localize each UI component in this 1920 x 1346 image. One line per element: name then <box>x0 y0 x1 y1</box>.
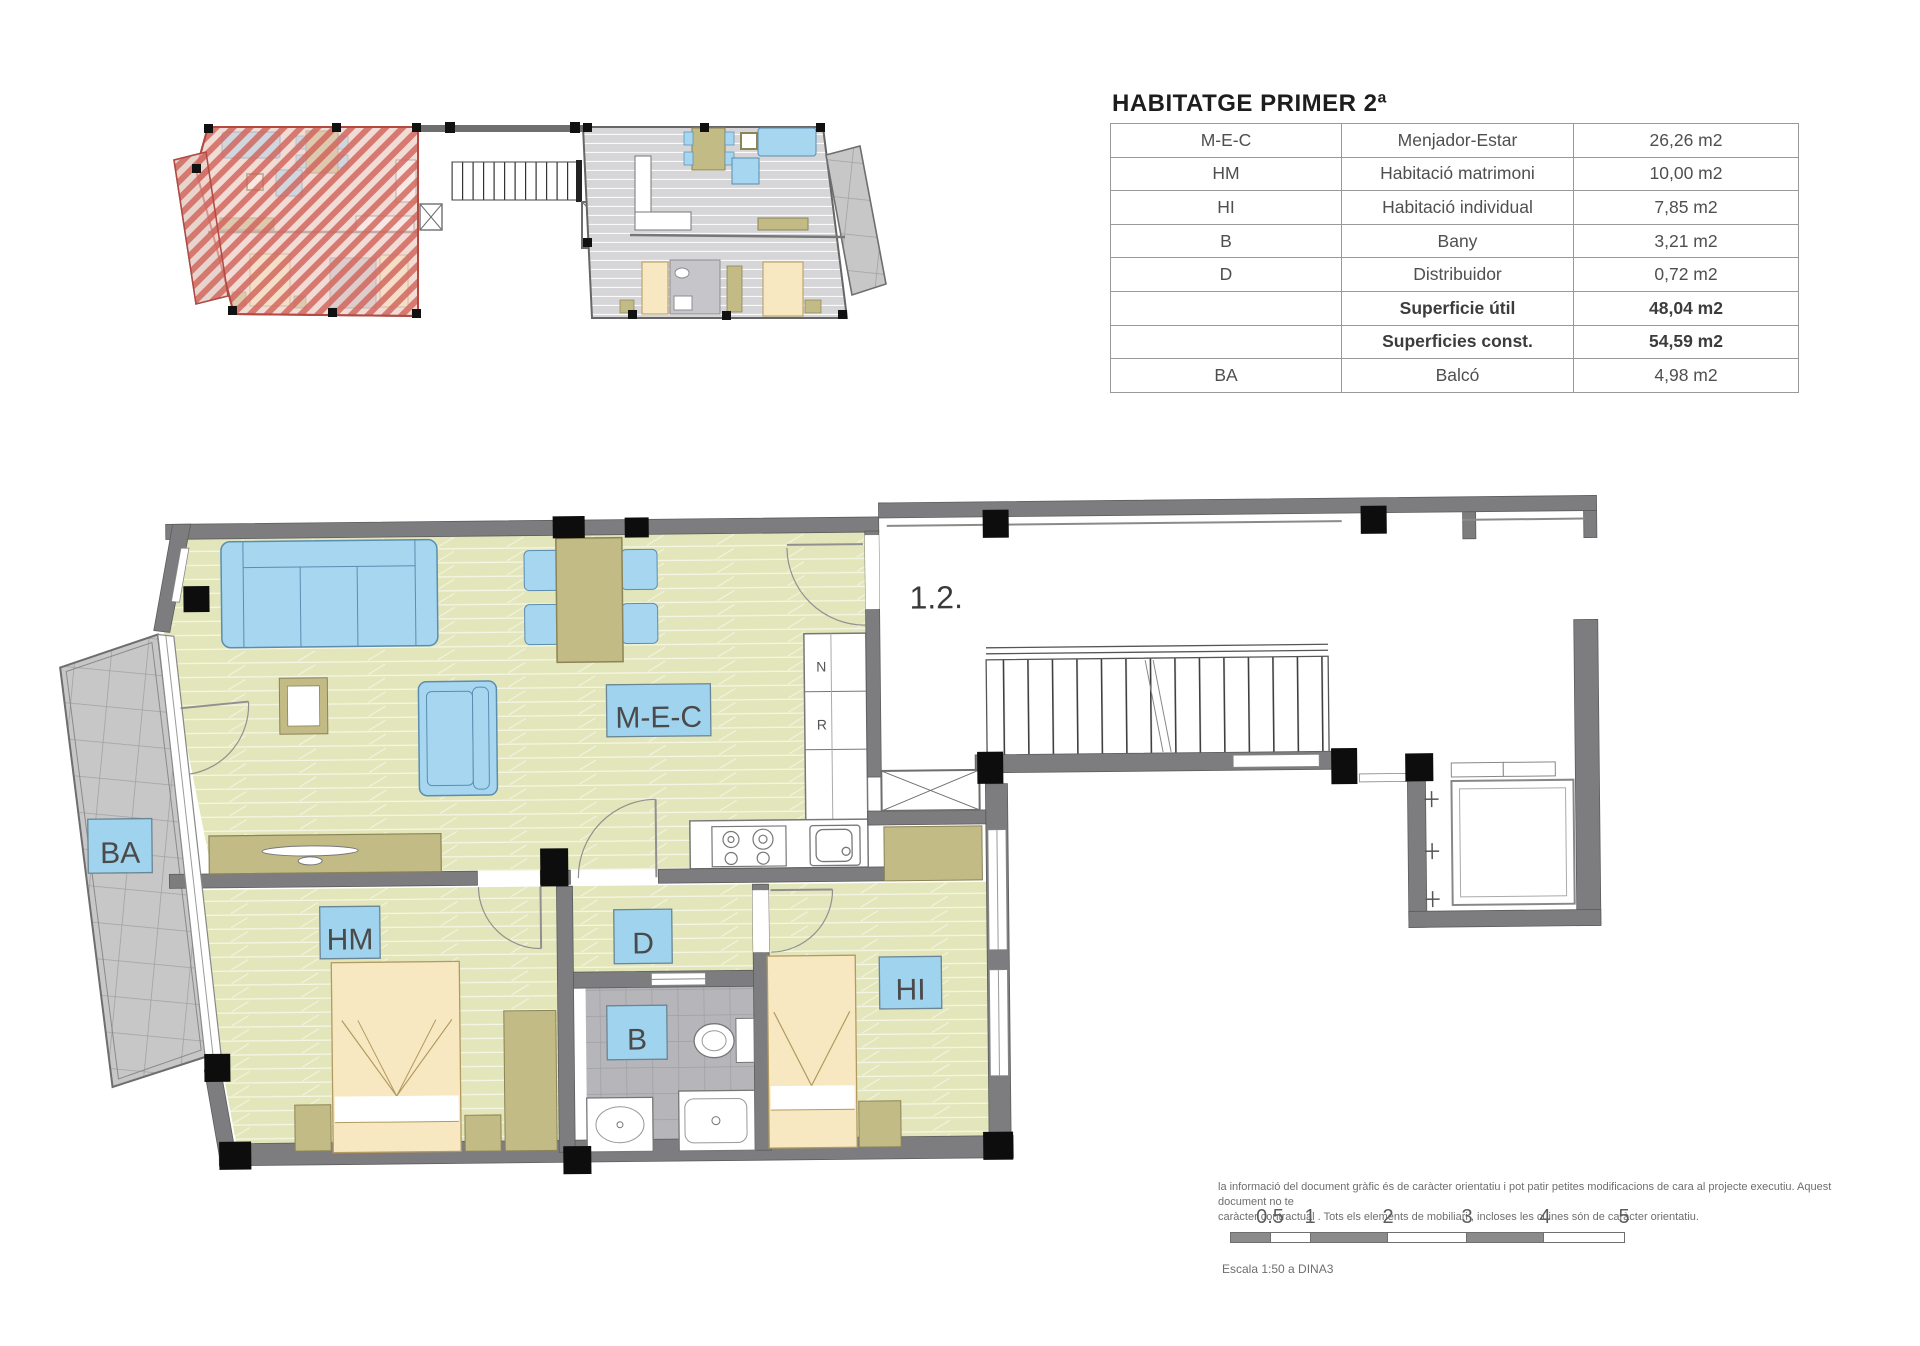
svg-text:BA: BA <box>100 837 140 870</box>
table-row: M-E-C Menjador-Estar 26,26 m2 <box>1111 124 1799 158</box>
stairwell: 1.2. <box>909 575 1329 756</box>
svg-text:M-E-C: M-E-C <box>615 701 702 735</box>
table-row: HI Habitació individual 7,85 m2 <box>1111 191 1799 225</box>
dining-table <box>556 538 623 663</box>
door-gap-hi <box>753 890 770 952</box>
room-code: HM <box>1111 157 1342 191</box>
room-concept: Superficies const. <box>1342 325 1574 359</box>
room-code: HI <box>1111 191 1342 225</box>
room-area: 7,85 m2 <box>1574 191 1799 225</box>
label-d: D <box>614 909 673 964</box>
wardrobe <box>504 1010 557 1151</box>
room-concept: Menjador-Estar <box>1342 124 1574 158</box>
svg-text:D: D <box>632 927 654 960</box>
vent-shaft <box>881 770 979 811</box>
table-row: HM Habitació matrimoni 10,00 m2 <box>1111 157 1799 191</box>
page-title: HABITATGE PRIMER 2ª <box>1112 90 1387 118</box>
room-area: 48,04 m2 <box>1574 291 1799 325</box>
table-row: D Distribuidor 0,72 m2 <box>1111 258 1799 292</box>
floor-plan-sheet: { "header": { "title": "HABITATGE PRIMER… <box>0 0 1920 1346</box>
vanity-sink-icon <box>679 1090 756 1151</box>
room-concept: Distribuidor <box>1342 258 1574 292</box>
room-area: 0,72 m2 <box>1574 258 1799 292</box>
label-b: B <box>607 1005 668 1060</box>
elevator-car <box>1451 780 1574 905</box>
scale-tick: 2 <box>1382 1206 1393 1229</box>
scale-tick: 4 <box>1539 1206 1550 1229</box>
table-row: Superficie útil 48,04 m2 <box>1111 291 1799 325</box>
scale-tick-labels: 0.5 1 2 3 4 5 <box>1230 1206 1630 1232</box>
room-concept: Superficie útil <box>1342 291 1574 325</box>
washbasin-icon <box>587 1097 654 1152</box>
key-plan <box>174 122 886 320</box>
table-row: BA Balcó 4,98 m2 <box>1111 359 1799 393</box>
label-mec: M-E-C <box>606 684 711 737</box>
room-concept: Balcó <box>1342 359 1574 393</box>
room-area: 54,59 m2 <box>1574 325 1799 359</box>
scale-tick: 3 <box>1461 1206 1472 1229</box>
nightstand <box>295 1105 331 1151</box>
armchair <box>418 681 497 796</box>
label-hm: HM <box>320 906 381 959</box>
landing-gap <box>1233 754 1319 767</box>
room-code: BA <box>1111 359 1342 393</box>
table-row: B Bany 3,21 m2 <box>1111 224 1799 258</box>
room-area: 26,26 m2 <box>1574 124 1799 158</box>
room-code: D <box>1111 258 1342 292</box>
room-code: M-E-C <box>1111 124 1342 158</box>
scale-bar-segments <box>1230 1232 1625 1243</box>
room-concept: Habitació matrimoni <box>1342 157 1574 191</box>
scale-tick: 5 <box>1618 1206 1629 1229</box>
svg-text:HI: HI <box>895 973 925 1006</box>
label-hi: HI <box>879 956 942 1009</box>
svg-text:HM: HM <box>327 923 374 956</box>
area-table: M-E-C Menjador-Estar 26,26 m2 HM Habitac… <box>1110 123 1799 393</box>
unit-number: 1.2. <box>909 579 963 616</box>
label-ba: BA <box>88 819 153 874</box>
scale-caption: Escala 1:50 a DINA3 <box>1222 1262 1333 1276</box>
tv-sideboard <box>209 834 441 874</box>
main-floor-plan: N R 1.2. <box>59 495 1604 1179</box>
room-concept: Bany <box>1342 224 1574 258</box>
stair-treads <box>986 656 1329 756</box>
fridge-label: N <box>816 659 826 675</box>
nightstand <box>465 1115 501 1151</box>
scale-tick: 0.5 <box>1256 1206 1284 1229</box>
key-plan-unit-highlighted <box>174 127 418 316</box>
scale-tick: 1 <box>1304 1206 1315 1229</box>
washer-label: R <box>817 717 827 733</box>
room-code <box>1111 291 1342 325</box>
scale-bar: 0.5 1 2 3 4 5 <box>1230 1206 1630 1262</box>
svg-text:B: B <box>627 1023 647 1056</box>
nightstand <box>859 1101 901 1147</box>
elevator <box>1406 619 1601 927</box>
single-bed <box>767 955 857 1148</box>
door-gap-entrance <box>865 535 880 609</box>
room-area: 3,21 m2 <box>1574 224 1799 258</box>
sink-icon <box>810 825 860 866</box>
side-table <box>279 678 328 734</box>
sofa <box>221 540 438 648</box>
closet <box>884 826 983 881</box>
table-row: Superficies const. 54,59 m2 <box>1111 325 1799 359</box>
room-area: 4,98 m2 <box>1574 359 1799 393</box>
room-area: 10,00 m2 <box>1574 157 1799 191</box>
room-code <box>1111 325 1342 359</box>
room-code: B <box>1111 224 1342 258</box>
room-concept: Habitació individual <box>1342 191 1574 225</box>
key-plan-unit-neighbor <box>583 127 886 318</box>
double-bed <box>331 961 461 1152</box>
